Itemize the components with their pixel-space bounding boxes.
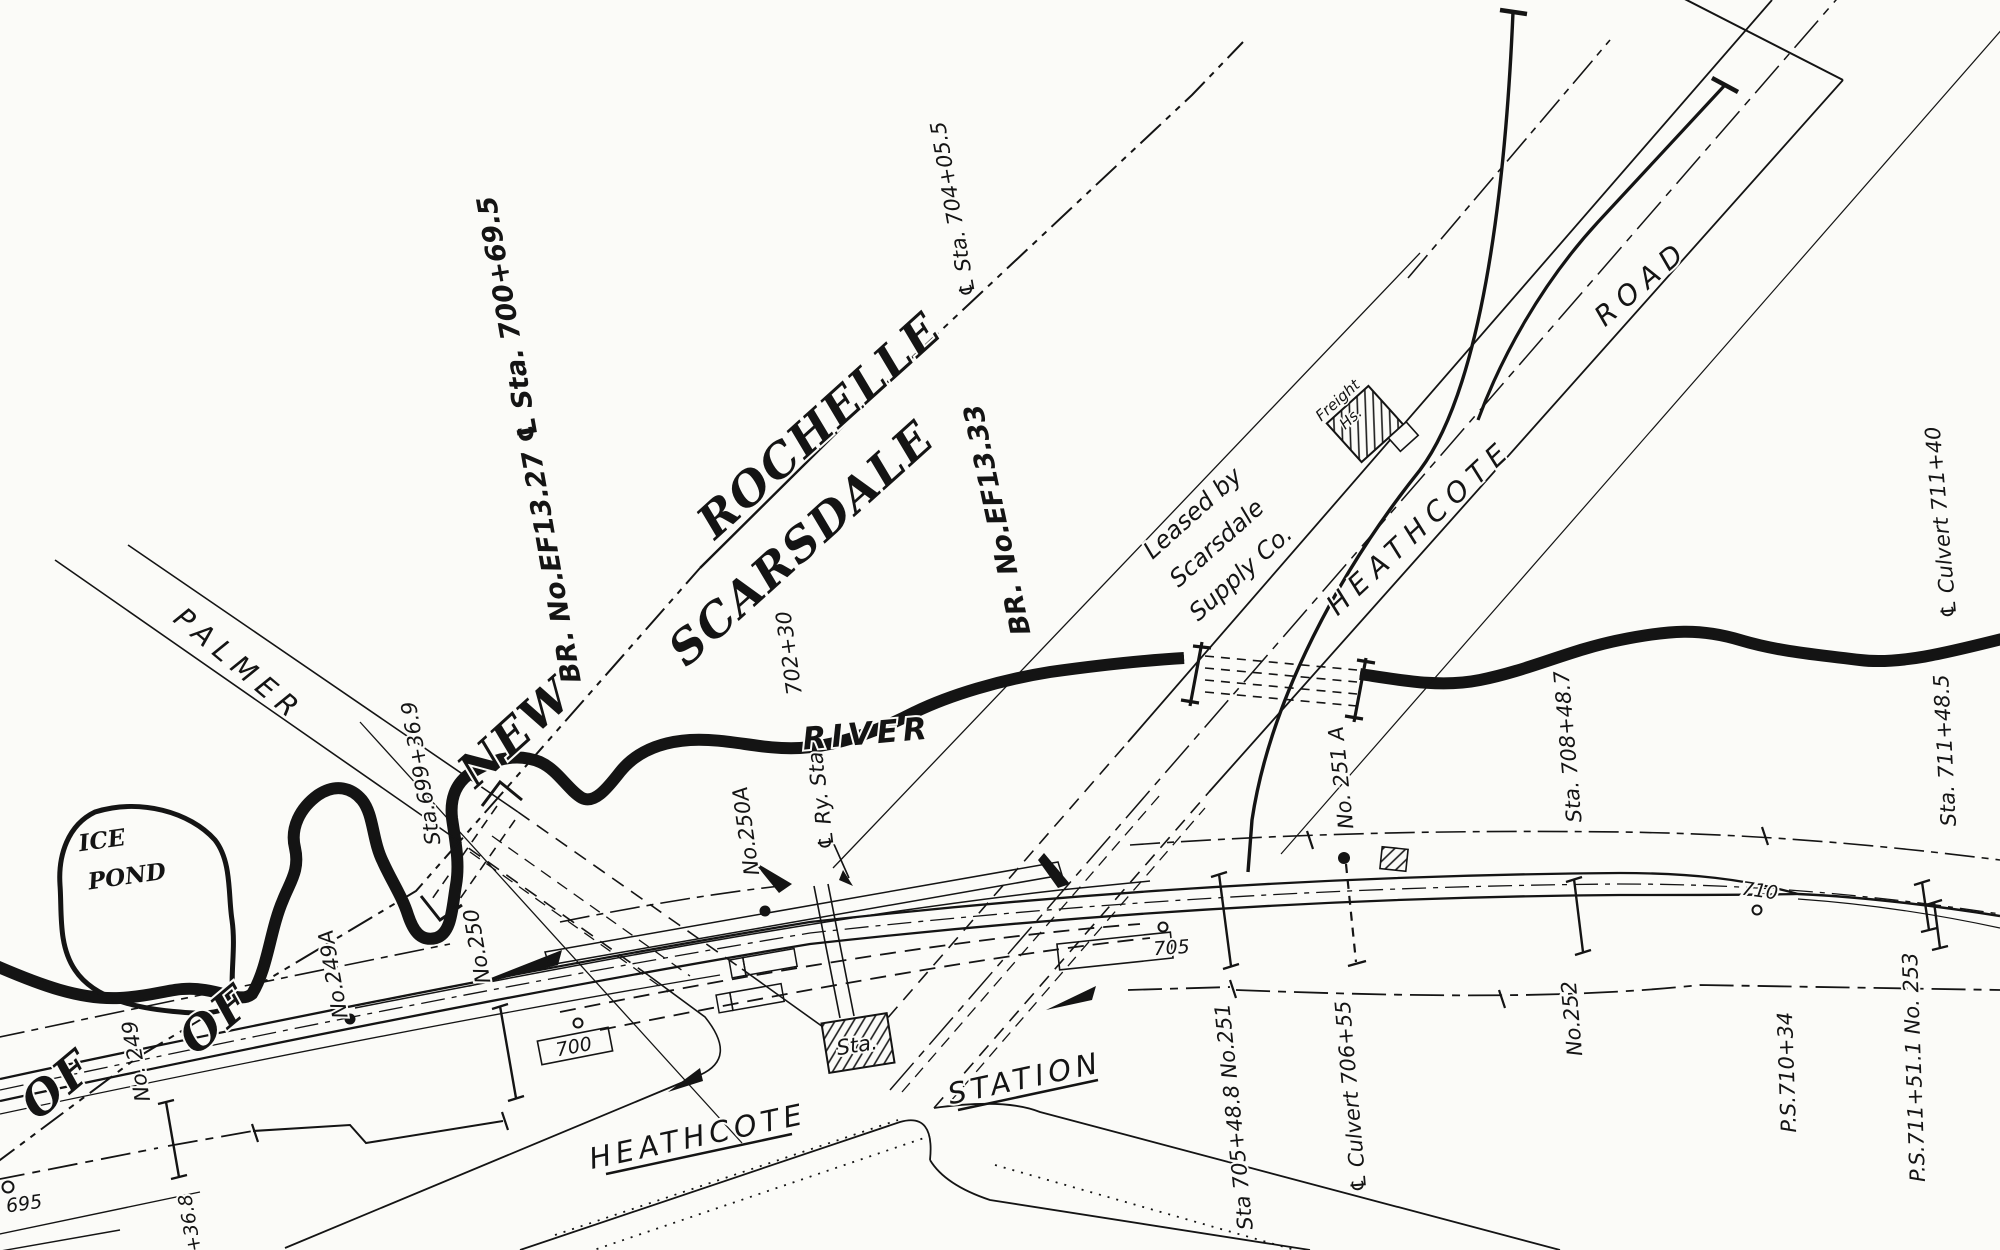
track-merged-east (1798, 894, 2000, 916)
label-boundary-sta: ℄ Sta. 704+05.5 (926, 120, 980, 299)
label-pond: POND (85, 858, 167, 896)
river-path-west (0, 658, 1184, 998)
circle-705 (1159, 923, 1168, 932)
label-road-palmer: PALMER (167, 601, 310, 729)
heathcote-east-edge (1209, 80, 1843, 792)
label-705: 705 (1153, 936, 1191, 960)
dot-culvert-70655 (1338, 852, 1350, 864)
row-south-west (0, 1131, 253, 1180)
tick-699 (492, 1004, 524, 1101)
label-sta-708487: Sta. 708+48.7 (1549, 669, 1586, 823)
map-canvas: NEW ROCHELLE SCARSDALE OF OF BR. No.EF13… (0, 0, 2000, 1250)
siding-end-bumper-2 (1712, 78, 1738, 92)
label-sta-705488: Sta 705+48.8 No.251 (1210, 1002, 1258, 1231)
palmer-crossing-inner (470, 836, 690, 992)
label-bridge-1327: BR. No.EF13.27 ℄ Sta. 700+69.5 (471, 194, 587, 686)
river-culvert-pipes (1205, 656, 1357, 706)
label-sta-711485: Sta. 711+48.5 (1929, 674, 1961, 827)
label-368: +36.8 (174, 1192, 206, 1250)
river-culvert-headwall-e (1345, 658, 1375, 722)
small-building (1380, 847, 1408, 872)
label-culvert-70655: ℄ Culvert 706+55 (1331, 1000, 1372, 1194)
river-core-east (1360, 632, 2000, 684)
label-no250: No.250 (459, 907, 496, 985)
tick-36-8 (158, 1100, 187, 1179)
switch-wedge-2 (1046, 986, 1096, 1010)
label-no249a: No.249A (314, 928, 353, 1020)
town-boundary-dashed-ne (918, 42, 1243, 352)
valuation-map: NEW ROCHELLE SCARSDALE OF OF BR. No.EF13… (0, 0, 2000, 1250)
row-south-zigzag (253, 1121, 503, 1143)
tick-no252 (1566, 877, 1591, 955)
track-centerline (0, 884, 2000, 1090)
label-710: 710 (1740, 878, 1779, 905)
property-corner-topright (1671, 0, 1843, 80)
label-ry-sta: ℄ Ry. Sta (803, 750, 839, 851)
label-no250a: No.250A (728, 785, 764, 877)
shelter-1-annex (729, 958, 746, 978)
circle-710 (1753, 906, 1762, 915)
label-river: RIVER (801, 710, 933, 757)
label-695: 695 (5, 1191, 44, 1218)
siding-end-bumper-1 (1500, 10, 1527, 14)
label-road-station: STATION (945, 1045, 1106, 1111)
bridge-1327-deck (430, 806, 515, 916)
circle-695 (3, 1182, 14, 1193)
shelter-2 (730, 984, 784, 1011)
label-ps-711511: P.S.711+51.1 No. 253 (1898, 952, 1930, 1182)
label-no251a: No. 251 A (1324, 725, 1359, 830)
circle-700 (574, 1019, 583, 1028)
heathcote-west-edge-crossing (858, 742, 1128, 1052)
water (0, 632, 2000, 1013)
palmer-east-edge-crossing (518, 812, 742, 969)
shelter-2-annex (716, 993, 733, 1013)
track-end-wedge (1038, 853, 1070, 888)
label-road-heathcote-ne: HEATHCOTE (1320, 432, 1520, 621)
palmer-west-edge-s (648, 975, 720, 1075)
label-of-2: OF (10, 1039, 105, 1131)
label-ice: ICE (76, 824, 127, 857)
switch-wedge-4 (668, 1068, 703, 1092)
river-core-west (0, 658, 1184, 998)
label-bridge-1333: BR. No.EF13.33 (958, 401, 1037, 638)
platform-north (545, 862, 1062, 965)
label-70230: 702+30 (771, 610, 807, 697)
label-culvert-71140: ℄ Culvert 711+40 (1921, 426, 1962, 620)
label-ps-71034: P.S.710+34 (1773, 1011, 1801, 1133)
shelter-1 (743, 949, 797, 976)
label-sta-699369: Sta.699+36.9 (397, 699, 446, 847)
label-road-road: ROAD (1588, 233, 1696, 333)
label-no249: No. 249 (117, 1019, 155, 1104)
dot-250a (760, 906, 771, 917)
label-no252: No.252 (1557, 980, 1587, 1057)
